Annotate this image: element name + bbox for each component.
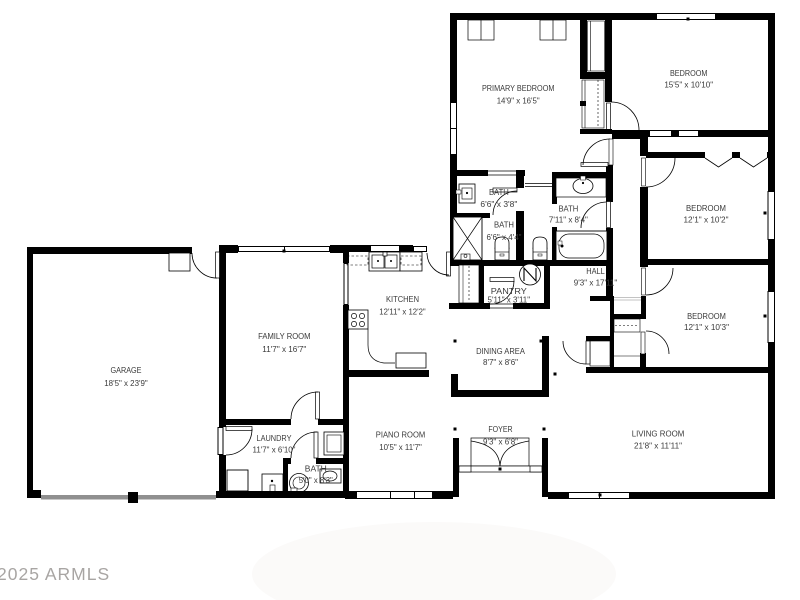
svg-text:DINING AREA: DINING AREA [476,346,525,356]
svg-text:LIVING ROOM: LIVING ROOM [632,429,685,439]
svg-text:HALL: HALL [586,266,605,276]
svg-text:9'3" x 17'11": 9'3" x 17'11" [574,278,618,288]
svg-text:2025 ARMLS: 2025 ARMLS [0,564,110,584]
svg-text:FAMILY ROOM: FAMILY ROOM [258,331,310,341]
svg-text:11'7" x 6'10": 11'7" x 6'10" [253,445,296,455]
svg-text:12'1" x 10'3": 12'1" x 10'3" [684,322,729,332]
svg-text:PIANO ROOM: PIANO ROOM [376,430,426,440]
svg-text:BATH: BATH [558,203,578,213]
svg-text:15'5" x 10'10": 15'5" x 10'10" [664,80,713,90]
svg-text:18'5" x 23'9": 18'5" x 23'9" [104,378,148,388]
svg-text:BATH: BATH [305,464,327,474]
svg-text:BATH: BATH [489,187,509,197]
svg-text:12'1" x 10'2": 12'1" x 10'2" [684,215,729,225]
svg-text:FOYER: FOYER [488,424,512,434]
svg-text:BEDROOM: BEDROOM [670,68,708,78]
svg-text:6'6" x 3'8": 6'6" x 3'8" [480,199,517,209]
svg-text:GARAGE: GARAGE [111,365,142,375]
svg-text:12'11" x 12'2": 12'11" x 12'2" [379,307,425,317]
svg-text:5'0" x 8'3": 5'0" x 8'3" [299,475,333,485]
svg-text:11'7" x 16'7": 11'7" x 16'7" [262,344,306,354]
svg-text:14'9" x 16'5": 14'9" x 16'5" [497,96,540,106]
svg-text:KITCHEN: KITCHEN [386,294,419,304]
svg-text:BEDROOM: BEDROOM [686,203,726,213]
svg-text:8'7" x 8'6": 8'7" x 8'6" [483,357,518,367]
svg-text:21'8" x 11'11": 21'8" x 11'11" [634,441,682,451]
svg-text:PRIMARY BEDROOM: PRIMARY BEDROOM [482,83,555,93]
svg-text:BEDROOM: BEDROOM [687,311,726,321]
svg-text:5'11" x 3'11": 5'11" x 3'11" [488,295,531,305]
svg-text:6'6" x 4'4": 6'6" x 4'4" [487,232,522,242]
svg-text:LAUNDRY: LAUNDRY [257,433,292,443]
svg-text:BATH: BATH [494,220,514,230]
svg-text:10'5" x 11'7": 10'5" x 11'7" [379,442,422,452]
svg-text:7'11" x 8'4": 7'11" x 8'4" [549,215,588,225]
svg-text:9'3" x 6'8": 9'3" x 6'8" [483,437,518,447]
